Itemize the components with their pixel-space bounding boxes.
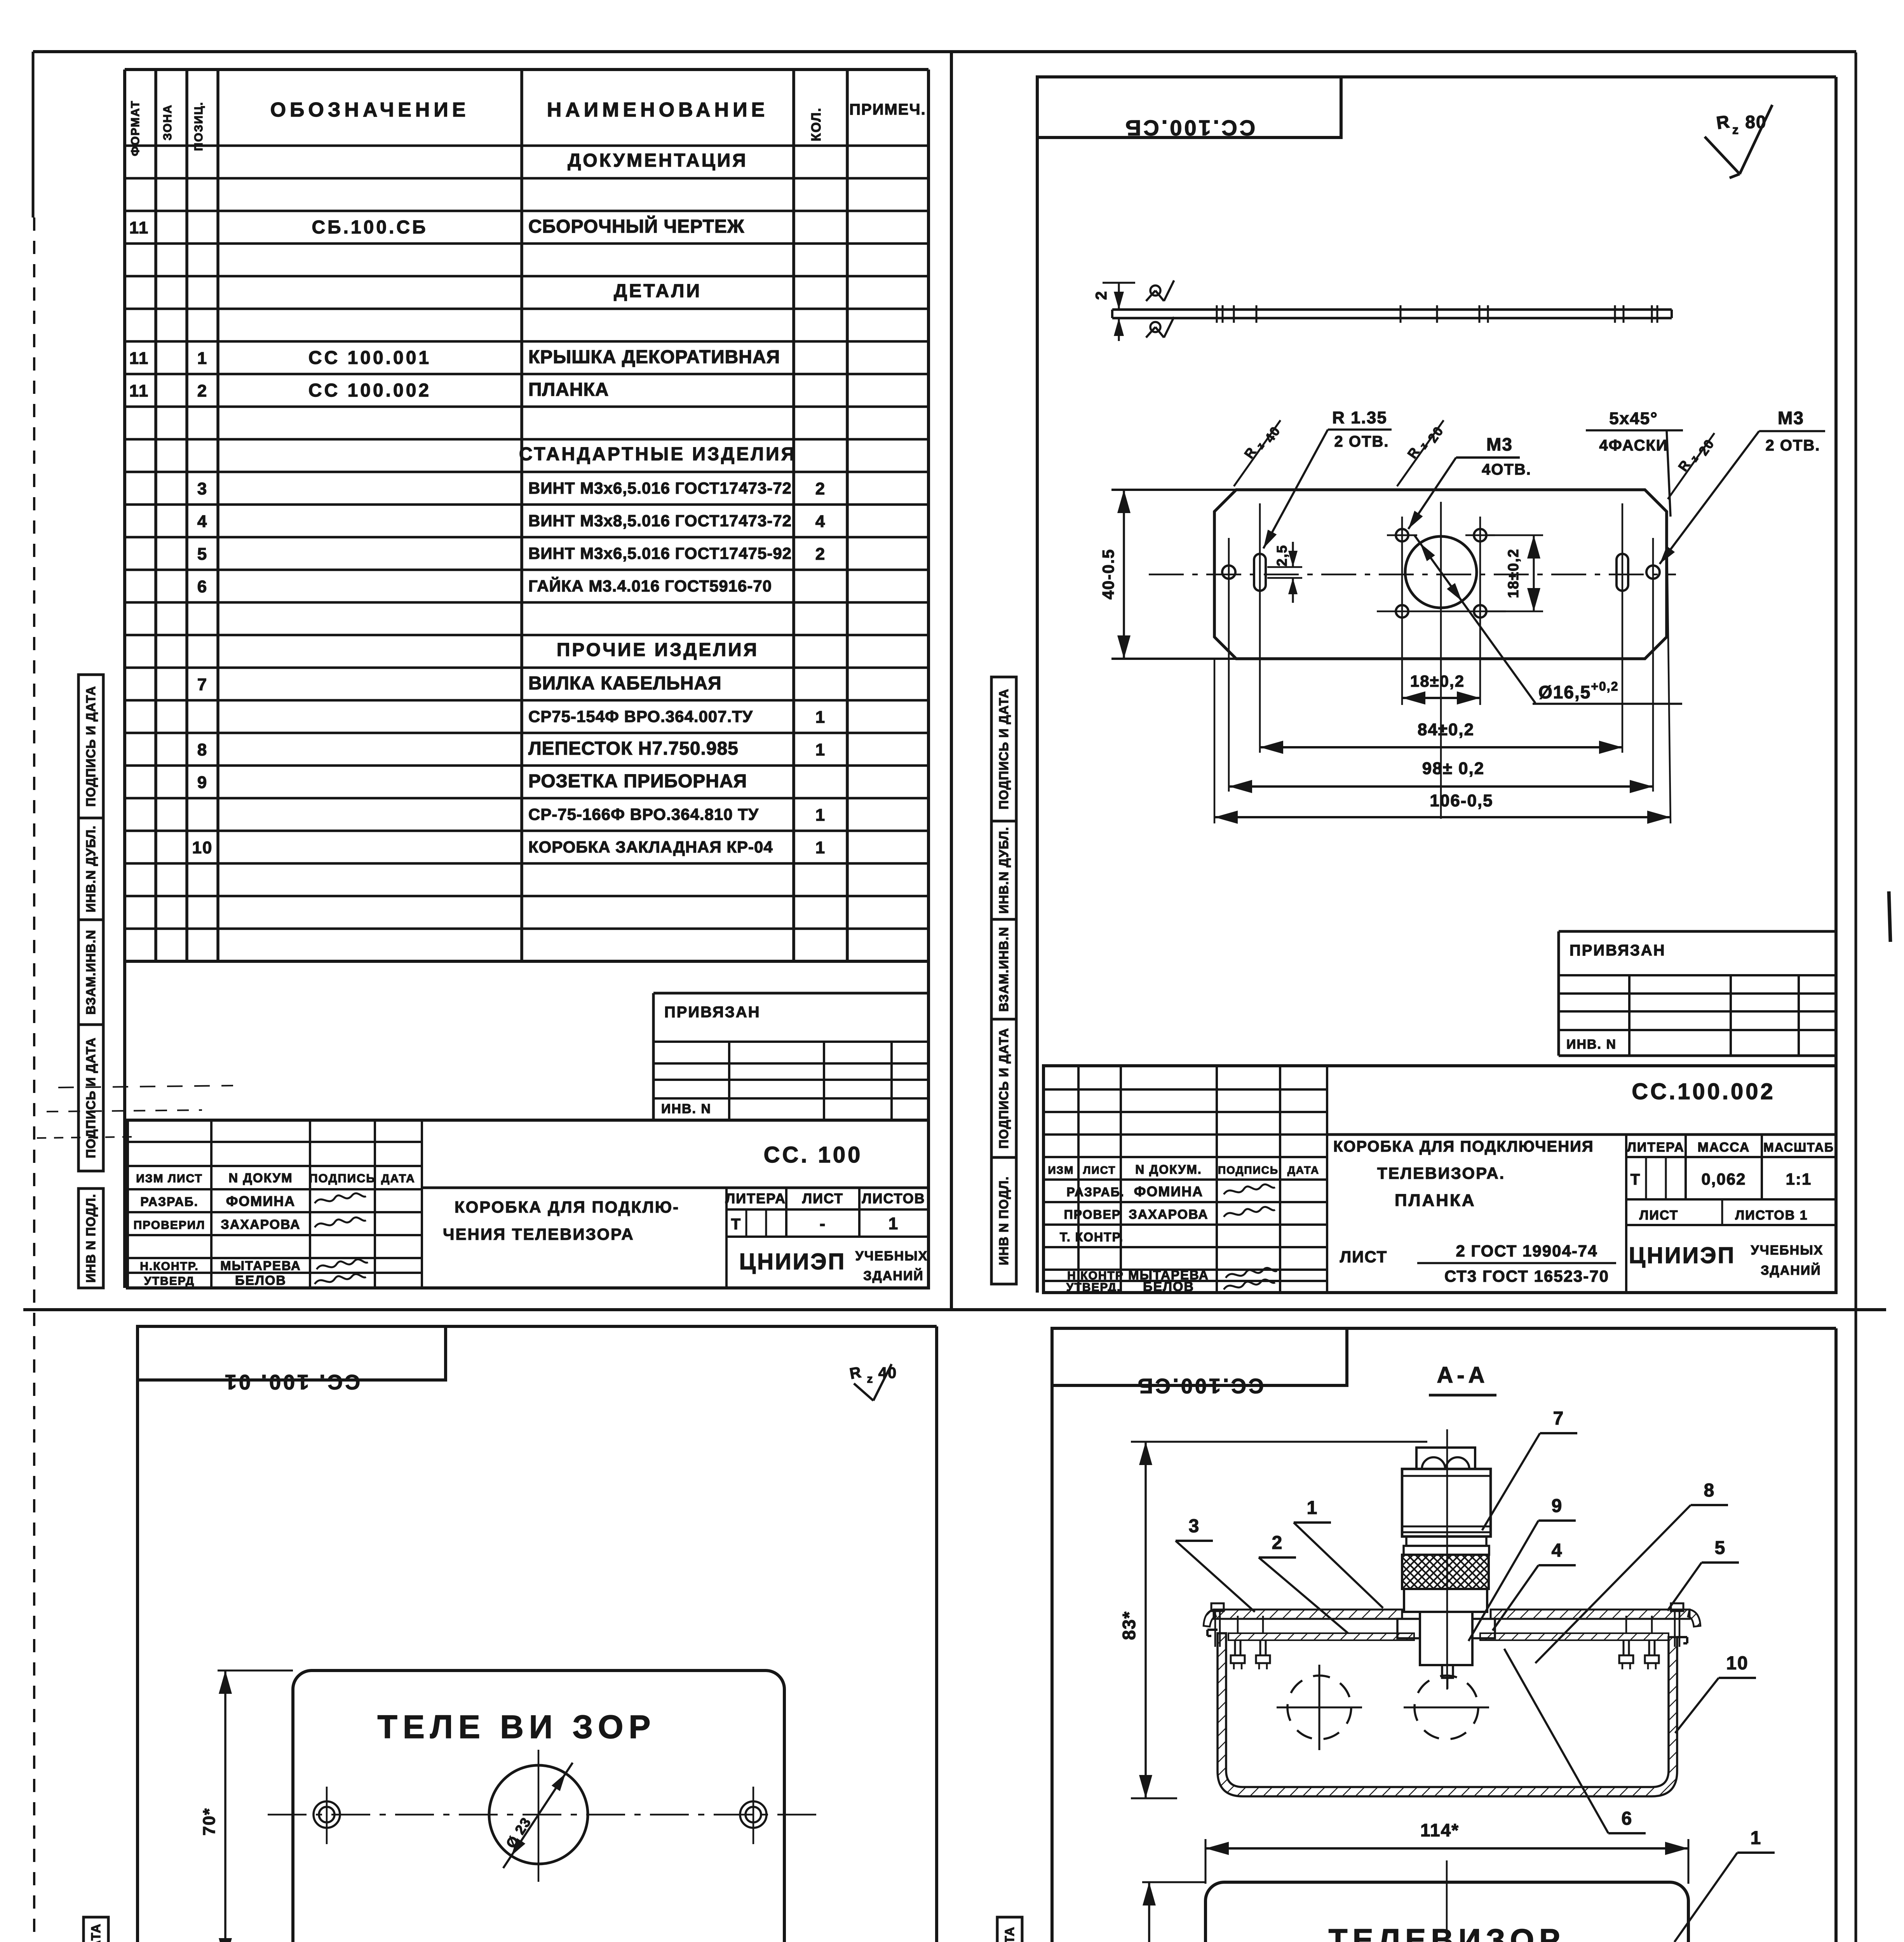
svg-text:РОЗЕТКА ПРИБОРНАЯ: РОЗЕТКА ПРИБОРНАЯ bbox=[528, 771, 747, 792]
svg-text:ЛЕПЕСТОК Н7.750.985: ЛЕПЕСТОК Н7.750.985 bbox=[528, 738, 739, 759]
svg-text:СС. 100. 01: СС. 100. 01 bbox=[223, 1370, 360, 1394]
svg-text:РАЗРАБ.: РАЗРАБ. bbox=[1066, 1185, 1124, 1199]
svg-text:УТВЕРД: УТВЕРД bbox=[144, 1275, 195, 1288]
svg-text:ДАТА: ДАТА bbox=[381, 1172, 415, 1185]
svg-text:Т. КОНТР.: Т. КОНТР. bbox=[1060, 1230, 1124, 1244]
svg-text:2: 2 bbox=[1272, 1533, 1283, 1553]
svg-text:1: 1 bbox=[815, 806, 826, 825]
svg-text:84±0,2: 84±0,2 bbox=[1418, 720, 1474, 739]
svg-text:ЧЕНИЯ ТЕЛЕВИЗОРА: ЧЕНИЯ ТЕЛЕВИЗОРА bbox=[443, 1225, 634, 1243]
svg-text:ИНВ N ПОДЛ.: ИНВ N ПОДЛ. bbox=[84, 1194, 98, 1282]
svg-text:ПРОВЕРИЛ: ПРОВЕРИЛ bbox=[134, 1219, 206, 1232]
svg-text:СБ.100.СБ: СБ.100.СБ bbox=[312, 217, 428, 238]
svg-text:СС.100.СБ: СС.100.СБ bbox=[1136, 1374, 1264, 1397]
svg-text:1:1: 1:1 bbox=[1786, 1170, 1812, 1188]
svg-text:КОЛ.: КОЛ. bbox=[809, 107, 824, 141]
svg-text:УЧЕБНЫХ: УЧЕБНЫХ bbox=[1751, 1243, 1824, 1258]
svg-text:ЛИСТ: ЛИСТ bbox=[802, 1190, 843, 1206]
svg-text:1: 1 bbox=[1307, 1498, 1318, 1518]
svg-text:СС. 100: СС. 100 bbox=[764, 1142, 863, 1168]
svg-text:МАСШТАБ: МАСШТАБ bbox=[1763, 1140, 1834, 1154]
svg-text:1: 1 bbox=[815, 708, 826, 727]
svg-text:R 1.35: R 1.35 bbox=[1332, 408, 1387, 427]
svg-text:А-А: А-А bbox=[1437, 1363, 1488, 1388]
svg-text:ИЗМ ЛИСТ: ИЗМ ЛИСТ bbox=[136, 1172, 203, 1185]
svg-text:ИНВ. N: ИНВ. N bbox=[1566, 1037, 1617, 1052]
svg-text:N ДОКУМ.: N ДОКУМ. bbox=[1135, 1162, 1202, 1176]
svg-text:2: 2 bbox=[197, 381, 207, 400]
svg-text:2: 2 bbox=[815, 479, 826, 498]
svg-text:6: 6 bbox=[1622, 1808, 1633, 1829]
svg-text:ИНВ N ПОДЛ.: ИНВ N ПОДЛ. bbox=[996, 1176, 1011, 1265]
svg-text:СБОРОЧНЫЙ ЧЕРТЕЖ: СБОРОЧНЫЙ ЧЕРТЕЖ bbox=[528, 216, 744, 237]
svg-text:ЛИСТОВ: ЛИСТОВ bbox=[862, 1190, 925, 1206]
svg-text:2 ОТВ.: 2 ОТВ. bbox=[1766, 437, 1820, 454]
svg-text:106-0,5: 106-0,5 bbox=[1430, 791, 1493, 810]
svg-text:6: 6 bbox=[197, 577, 207, 596]
svg-text:0,062: 0,062 bbox=[1701, 1170, 1746, 1188]
svg-text:ВЗАМ.ИНВ.N: ВЗАМ.ИНВ.N bbox=[996, 927, 1011, 1012]
svg-text:18±0,2: 18±0,2 bbox=[1505, 548, 1522, 598]
svg-text:1: 1 bbox=[888, 1214, 899, 1233]
svg-text:ПОЗИЦ.: ПОЗИЦ. bbox=[192, 101, 205, 151]
svg-text:ФОМИНА: ФОМИНА bbox=[226, 1193, 296, 1209]
svg-text:2: 2 bbox=[815, 545, 826, 564]
svg-text:ЛИСТ: ЛИСТ bbox=[1083, 1164, 1116, 1176]
svg-text:5х45°: 5х45° bbox=[1609, 409, 1658, 428]
svg-text:ВИНТ М3х6,5.016 ГОСТ17475-92: ВИНТ М3х6,5.016 ГОСТ17475-92 bbox=[528, 544, 792, 562]
svg-text:ПРИМЕЧ.: ПРИМЕЧ. bbox=[849, 101, 926, 118]
svg-text:СР75-154Ф ВРО.364.007.ТУ: СР75-154Ф ВРО.364.007.ТУ bbox=[528, 707, 753, 726]
svg-text:КРЫШКА ДЕКОРАТИВНАЯ: КРЫШКА ДЕКОРАТИВНАЯ bbox=[528, 347, 780, 367]
svg-text:СС 100.001: СС 100.001 bbox=[308, 348, 431, 368]
svg-text:ИНВ. N: ИНВ. N bbox=[661, 1102, 711, 1116]
svg-text:1: 1 bbox=[815, 740, 826, 759]
svg-text:УЧЕБНЫХ: УЧЕБНЫХ bbox=[855, 1249, 928, 1263]
svg-text:83*: 83* bbox=[1119, 1611, 1139, 1640]
svg-text:18±0,2: 18±0,2 bbox=[1410, 672, 1465, 690]
svg-text:ГАЙКА М3.4.016 ГОСТ5916-70: ГАЙКА М3.4.016 ГОСТ5916-70 bbox=[528, 576, 772, 595]
svg-text:ЗДАНИЙ: ЗДАНИЙ bbox=[1761, 1263, 1821, 1278]
svg-text:ИНВ.N ДУБЛ.: ИНВ.N ДУБЛ. bbox=[84, 825, 98, 912]
svg-text:ДОКУМЕНТАЦИЯ: ДОКУМЕНТАЦИЯ bbox=[568, 150, 748, 171]
svg-text:УТВЕРД.: УТВЕРД. bbox=[1066, 1281, 1121, 1294]
svg-text:ЛИСТОВ 1: ЛИСТОВ 1 bbox=[1735, 1208, 1808, 1223]
svg-text:СС.100.002: СС.100.002 bbox=[1632, 1079, 1775, 1104]
svg-text:11: 11 bbox=[129, 218, 149, 237]
svg-text:ВИЛКА КАБЕЛЬНАЯ: ВИЛКА КАБЕЛЬНАЯ bbox=[528, 673, 722, 694]
svg-text:9: 9 bbox=[197, 773, 207, 792]
svg-text:БЕЛОВ: БЕЛОВ bbox=[1143, 1279, 1194, 1294]
svg-text:N ДОКУМ: N ДОКУМ bbox=[228, 1171, 293, 1185]
svg-text:40-0.5: 40-0.5 bbox=[1099, 548, 1117, 599]
svg-text:ПРИВЯЗАН: ПРИВЯЗАН bbox=[664, 1004, 761, 1021]
svg-text:БЕЛОВ: БЕЛОВ bbox=[235, 1273, 286, 1288]
svg-text:2 ОТВ.: 2 ОТВ. bbox=[1334, 433, 1389, 450]
svg-text:ТЕЛЕ ВИ ЗОР: ТЕЛЕ ВИ ЗОР bbox=[378, 1709, 656, 1745]
svg-text:ПЛАНКА: ПЛАНКА bbox=[528, 379, 609, 400]
svg-text:2,5: 2,5 bbox=[1274, 545, 1290, 566]
svg-text:8: 8 bbox=[1704, 1480, 1715, 1501]
svg-text:МЫТАРЕВА: МЫТАРЕВА bbox=[220, 1258, 301, 1273]
svg-text:ЦНИИЭП: ЦНИИЭП bbox=[739, 1249, 846, 1274]
svg-text:ЛИТЕРА: ЛИТЕРА bbox=[1627, 1140, 1685, 1155]
svg-text:ПЛАНКА: ПЛАНКА bbox=[1395, 1191, 1476, 1210]
svg-text:ПОДПИСЬ И ДАТА: ПОДПИСЬ И ДАТА bbox=[996, 1028, 1011, 1148]
svg-text:ЛИСТ: ЛИСТ bbox=[1340, 1248, 1388, 1266]
svg-text:ВИНТ М3х6,5.016 ГОСТ17473-72: ВИНТ М3х6,5.016 ГОСТ17473-72 bbox=[528, 479, 792, 497]
svg-text:114*: 114* bbox=[1420, 1820, 1459, 1840]
svg-text:НАИМЕНОВАНИЕ: НАИМЕНОВАНИЕ bbox=[547, 99, 769, 121]
svg-text:ЗАХАРОВА: ЗАХАРОВА bbox=[221, 1217, 300, 1232]
svg-text:ПОДПИСЬ: ПОДПИСЬ bbox=[309, 1171, 375, 1185]
svg-text:ПРОЧИЕ ИЗДЕЛИЯ: ПРОЧИЕ ИЗДЕЛИЯ bbox=[557, 640, 759, 660]
svg-text:4ФАСКИ: 4ФАСКИ bbox=[1599, 437, 1668, 454]
svg-text:Т: Т bbox=[731, 1216, 741, 1233]
svg-text:2 ГОСТ 19904-74: 2 ГОСТ 19904-74 bbox=[1456, 1242, 1597, 1260]
svg-text:11: 11 bbox=[129, 381, 149, 400]
svg-text:М3: М3 bbox=[1486, 434, 1513, 454]
svg-text:11: 11 bbox=[129, 349, 149, 368]
svg-text:7: 7 bbox=[1553, 1408, 1564, 1429]
svg-text:СС.100.СБ: СС.100.СБ bbox=[1123, 116, 1255, 140]
svg-text:ИЗМ: ИЗМ bbox=[1048, 1164, 1074, 1176]
svg-text:8: 8 bbox=[197, 740, 207, 759]
svg-text:ЗДАНИЙ: ЗДАНИЙ bbox=[863, 1268, 924, 1283]
svg-text:КОРОБКА ЗАКЛАДНАЯ КР-04: КОРОБКА ЗАКЛАДНАЯ КР-04 bbox=[528, 838, 773, 856]
svg-text:98± 0,2: 98± 0,2 bbox=[1422, 759, 1484, 778]
svg-text:1: 1 bbox=[1751, 1828, 1762, 1848]
svg-text:4: 4 bbox=[815, 512, 826, 531]
svg-text:70*: 70* bbox=[200, 1808, 219, 1836]
svg-text:СР-75-166Ф ВРО.364.810 ТУ: СР-75-166Ф ВРО.364.810 ТУ bbox=[528, 805, 759, 823]
svg-text:ПРОВЕР.: ПРОВЕР. bbox=[1064, 1208, 1124, 1222]
svg-text:РАЗРАБ.: РАЗРАБ. bbox=[140, 1195, 198, 1209]
svg-text:ФОМИНА: ФОМИНА bbox=[1134, 1183, 1204, 1199]
svg-text:МАССА: МАССА bbox=[1698, 1140, 1750, 1155]
svg-text:КОРОБКА ДЛЯ ПОДКЛЮ-: КОРОБКА ДЛЯ ПОДКЛЮ- bbox=[455, 1198, 679, 1216]
svg-text:R: R bbox=[1715, 111, 1732, 133]
svg-text:10: 10 bbox=[1726, 1653, 1748, 1674]
svg-text:2: 2 bbox=[1093, 291, 1110, 300]
svg-text:5: 5 bbox=[197, 545, 207, 564]
svg-text:ДАТА: ДАТА bbox=[1287, 1164, 1319, 1176]
svg-text:ПРИВЯЗАН: ПРИВЯЗАН bbox=[1570, 942, 1666, 959]
svg-text:ФОРМАТ: ФОРМАТ bbox=[129, 100, 142, 156]
svg-text:ПОДПИСЬ: ПОДПИСЬ bbox=[1218, 1164, 1279, 1176]
svg-text:ВИНТ М3х8,5.016 ГОСТ17473-72: ВИНТ М3х8,5.016 ГОСТ17473-72 bbox=[528, 512, 792, 530]
svg-text:Н КОНТР: Н КОНТР bbox=[1067, 1269, 1124, 1282]
svg-text:3: 3 bbox=[197, 479, 207, 498]
svg-text:ПОДПИСЬ И ДАТА: ПОДПИСЬ И ДАТА bbox=[89, 1923, 103, 1942]
svg-text:ЛИТЕРА: ЛИТЕРА bbox=[725, 1190, 786, 1206]
svg-text:4: 4 bbox=[1552, 1540, 1563, 1561]
svg-text:4ОТВ.: 4ОТВ. bbox=[1482, 461, 1531, 478]
svg-text:4: 4 bbox=[197, 512, 207, 531]
svg-text:Н.КОНТР.: Н.КОНТР. bbox=[140, 1260, 199, 1273]
svg-text:ИНВ.N ДУБЛ.: ИНВ.N ДУБЛ. bbox=[996, 827, 1011, 914]
svg-text:z: z bbox=[867, 1373, 874, 1385]
svg-text:СТАНДАРТНЫЕ ИЗДЕЛИЯ: СТАНДАРТНЫЕ ИЗДЕЛИЯ bbox=[519, 444, 796, 465]
svg-text:3: 3 bbox=[1189, 1516, 1200, 1537]
svg-text:М3: М3 bbox=[1778, 408, 1804, 428]
svg-text:7: 7 bbox=[197, 675, 207, 694]
svg-text:z: z bbox=[1732, 123, 1739, 137]
svg-text:9: 9 bbox=[1552, 1496, 1563, 1516]
svg-text:ПОДПИСЬ И ДАТА: ПОДПИСЬ И ДАТА bbox=[84, 1037, 98, 1158]
svg-text:ДЕТАЛИ: ДЕТАЛИ bbox=[614, 281, 702, 301]
svg-text:5: 5 bbox=[1715, 1538, 1726, 1558]
svg-text:ЗАХАРОВА: ЗАХАРОВА bbox=[1129, 1207, 1208, 1222]
svg-text:СС 100.002: СС 100.002 bbox=[308, 380, 431, 401]
svg-text:ПОДПИСЬ И ДАТА: ПОДПИСЬ И ДАТА bbox=[84, 686, 98, 807]
svg-text:Т: Т bbox=[1631, 1171, 1641, 1188]
svg-text:ЛИСТ: ЛИСТ bbox=[1639, 1208, 1679, 1223]
svg-text:-: - bbox=[820, 1214, 826, 1233]
svg-text:1: 1 bbox=[197, 349, 207, 368]
svg-text:КОРОБКА ДЛЯ ПОДКЛЮЧЕНИЯ: КОРОБКА ДЛЯ ПОДКЛЮЧЕНИЯ bbox=[1333, 1138, 1594, 1155]
svg-text:ВЗАМ.ИНВ.N: ВЗАМ.ИНВ.N bbox=[84, 930, 98, 1015]
svg-text:ТЕЛЕВИЗОРА.: ТЕЛЕВИЗОРА. bbox=[1377, 1164, 1505, 1182]
svg-text:ЦНИИЭП: ЦНИИЭП bbox=[1629, 1243, 1736, 1268]
svg-text:СТ3 ГОСТ 16523-70: СТ3 ГОСТ 16523-70 bbox=[1444, 1267, 1609, 1285]
svg-text:ОБОЗНАЧЕНИЕ: ОБОЗНАЧЕНИЕ bbox=[270, 99, 470, 121]
svg-text:1: 1 bbox=[815, 838, 826, 857]
svg-text:ЗОНА: ЗОНА bbox=[161, 104, 174, 140]
svg-text:10: 10 bbox=[192, 838, 213, 857]
svg-text:ПОДПИСЬ И ДАТА: ПОДПИСЬ И ДАТА bbox=[996, 689, 1011, 809]
svg-text:ПОДПИСЬ И ДАТА: ПОДПИСЬ И ДАТА bbox=[1002, 1926, 1017, 1942]
